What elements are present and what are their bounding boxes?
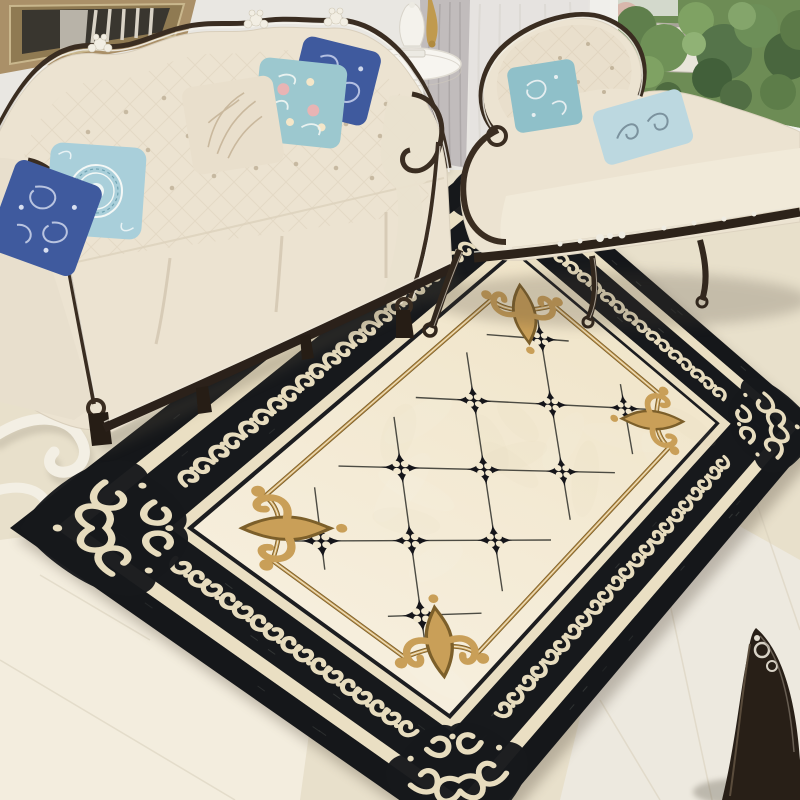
photo-canvas [0,0,800,800]
chaise-pillow-teal [506,58,583,134]
pillow-cream-leaf [181,74,286,175]
lamp-finial [409,2,415,8]
chaise-shadow [430,272,800,328]
living-room-rug-photo [0,0,800,800]
tassel-ball [429,41,436,48]
leg-carving [754,635,760,641]
